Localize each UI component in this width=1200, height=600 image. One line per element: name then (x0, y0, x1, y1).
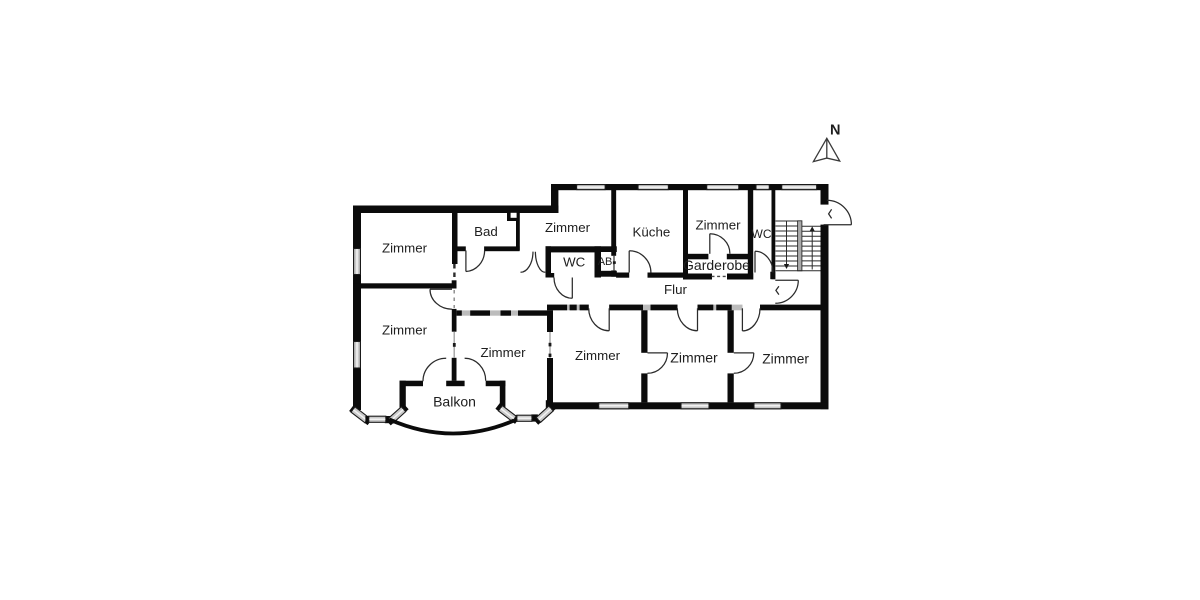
svg-text:Zimmer: Zimmer (545, 220, 591, 235)
svg-text:Balkon: Balkon (433, 394, 476, 410)
svg-text:Zimmer: Zimmer (382, 323, 428, 338)
svg-text:Zimmer: Zimmer (762, 352, 809, 367)
svg-text:AB.: AB. (598, 256, 616, 268)
svg-text:Flur: Flur (664, 282, 687, 297)
svg-text:Zimmer: Zimmer (480, 345, 526, 360)
svg-text:Zimmer: Zimmer (575, 348, 621, 363)
svg-text:WC: WC (563, 254, 586, 269)
svg-text:Zimmer: Zimmer (695, 217, 741, 232)
svg-text:Küche: Küche (633, 224, 671, 239)
svg-text:Zimmer: Zimmer (670, 350, 718, 366)
svg-text:Garderobe: Garderobe (683, 257, 750, 273)
svg-text:Zimmer: Zimmer (382, 240, 428, 255)
svg-text:N: N (830, 122, 840, 138)
svg-text:WC: WC (752, 227, 772, 241)
svg-text:Bad: Bad (474, 224, 498, 239)
